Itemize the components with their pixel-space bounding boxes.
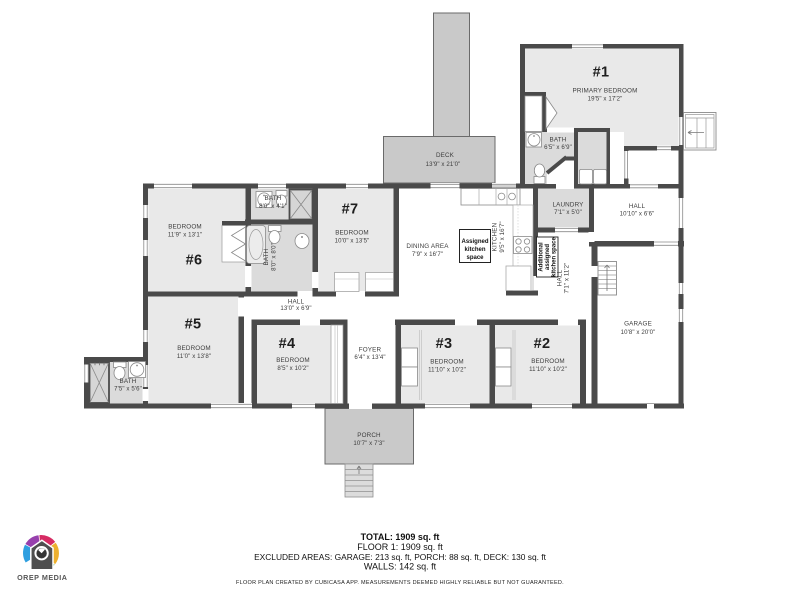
svg-text:9'5" x 16'7": 9'5" x 16'7" (499, 221, 506, 252)
svg-text:BEDROOM: BEDROOM (177, 345, 211, 352)
svg-text:assigned: assigned (545, 244, 551, 270)
svg-text:LAUNDRY: LAUNDRY (552, 202, 584, 209)
svg-text:HALL: HALL (629, 203, 646, 210)
svg-text:FLOOR PLAN CREATED BY CUBICASA: FLOOR PLAN CREATED BY CUBICASA APP. MEAS… (236, 580, 564, 586)
svg-text:10'0" x 13'5": 10'0" x 13'5" (335, 238, 370, 245)
svg-text:Additional: Additional (539, 242, 545, 272)
svg-text:11'10" x 10'2": 11'10" x 10'2" (529, 366, 567, 373)
svg-text:6'5" x 6'9": 6'5" x 6'9" (544, 144, 572, 151)
svg-text:8'0" x 4'1": 8'0" x 4'1" (259, 203, 287, 210)
svg-text:7'9" x 16'7": 7'9" x 16'7" (412, 251, 443, 258)
svg-text:BEDROOM: BEDROOM (430, 359, 464, 366)
svg-text:KITCHEN: KITCHEN (492, 222, 499, 251)
svg-text:PORCH: PORCH (357, 432, 381, 439)
svg-text:BEDROOM: BEDROOM (531, 358, 565, 365)
svg-text:10'8" x 20'0": 10'8" x 20'0" (621, 329, 656, 336)
svg-text:7'1" x 11'2": 7'1" x 11'2" (564, 263, 571, 294)
svg-text:GARAGE: GARAGE (624, 321, 652, 328)
svg-text:10'7" x 7'3": 10'7" x 7'3" (353, 440, 384, 447)
svg-text:BATH: BATH (265, 195, 282, 202)
svg-text:PRIMARY BEDROOM: PRIMARY BEDROOM (573, 88, 638, 95)
svg-text:7'5" x 5'6": 7'5" x 5'6" (114, 386, 142, 393)
svg-text:BEDROOM: BEDROOM (335, 230, 369, 237)
svg-text:#1: #1 (593, 65, 610, 81)
svg-text:HALL: HALL (557, 269, 564, 286)
svg-text:FOYER: FOYER (359, 347, 382, 354)
svg-text:TOTAL: 1909 sq. ft: TOTAL: 1909 sq. ft (361, 532, 440, 542)
svg-text:#3: #3 (436, 336, 453, 352)
svg-text:EXCLUDED AREAS: GARAGE: 213 sq: EXCLUDED AREAS: GARAGE: 213 sq. ft, PORC… (254, 552, 547, 562)
svg-text:19'5" x 17'2": 19'5" x 17'2" (588, 96, 623, 103)
svg-text:#5: #5 (185, 317, 202, 333)
svg-text:#7: #7 (342, 202, 359, 218)
svg-text:11'0" x 13'8": 11'0" x 13'8" (177, 353, 211, 360)
svg-text:6'4" x 13'4": 6'4" x 13'4" (354, 354, 385, 361)
svg-text:13'9" x 21'0": 13'9" x 21'0" (426, 161, 461, 168)
svg-text:DINING AREA: DINING AREA (406, 243, 449, 250)
svg-text:FLOOR 1: 1909 sq. ft: FLOOR 1: 1909 sq. ft (357, 542, 443, 552)
svg-text:BEDROOM: BEDROOM (276, 357, 310, 364)
svg-text:BEDROOM: BEDROOM (168, 224, 202, 231)
svg-text:BATH: BATH (263, 248, 270, 265)
svg-text:#6: #6 (186, 253, 203, 269)
svg-text:OREP MEDIA: OREP MEDIA (17, 573, 67, 582)
svg-text:kitchen: kitchen (464, 247, 485, 253)
svg-text:WALLS: 142 sq. ft: WALLS: 142 sq. ft (364, 562, 437, 572)
svg-text:DECK: DECK (436, 152, 455, 159)
svg-text:BATH: BATH (550, 137, 567, 144)
svg-text:10'10" x 6'6": 10'10" x 6'6" (620, 211, 655, 218)
svg-text:13'0" x 6'9": 13'0" x 6'9" (280, 305, 311, 312)
svg-text:8'5" x 10'2": 8'5" x 10'2" (277, 365, 308, 372)
svg-text:Assigned: Assigned (461, 239, 488, 245)
svg-text:space: space (466, 255, 484, 261)
svg-text:#4: #4 (279, 336, 296, 352)
svg-text:7'1" x 5'0": 7'1" x 5'0" (554, 209, 582, 216)
svg-text:11'9" x 13'1": 11'9" x 13'1" (168, 232, 202, 239)
svg-text:11'10" x 10'2": 11'10" x 10'2" (428, 367, 466, 374)
svg-text:8'0" x 8'0": 8'0" x 8'0" (271, 243, 278, 271)
svg-text:BATH: BATH (120, 378, 137, 385)
svg-text:#2: #2 (534, 336, 551, 352)
